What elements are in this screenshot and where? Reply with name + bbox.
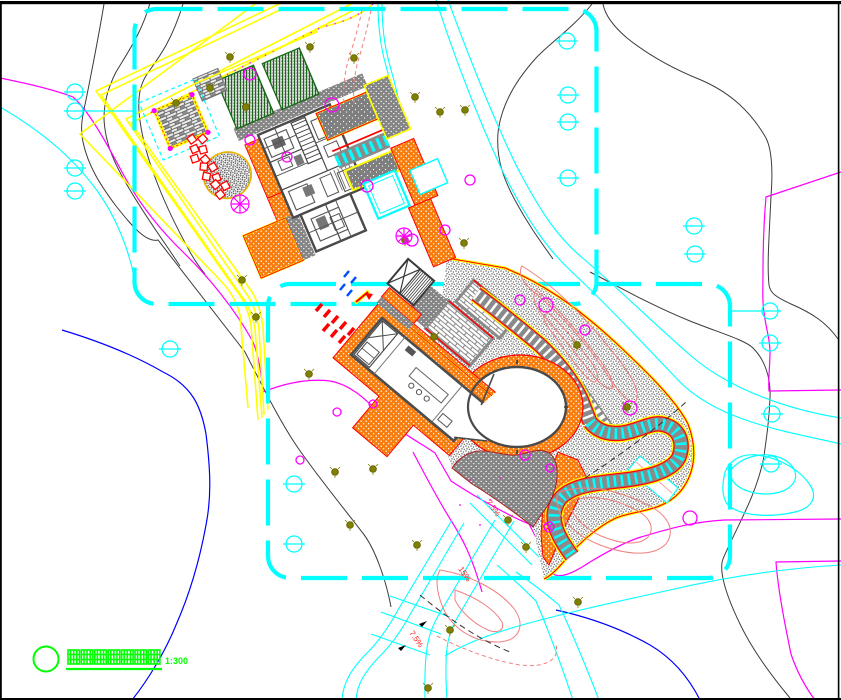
svg-text:1:300: 1:300	[165, 656, 188, 666]
